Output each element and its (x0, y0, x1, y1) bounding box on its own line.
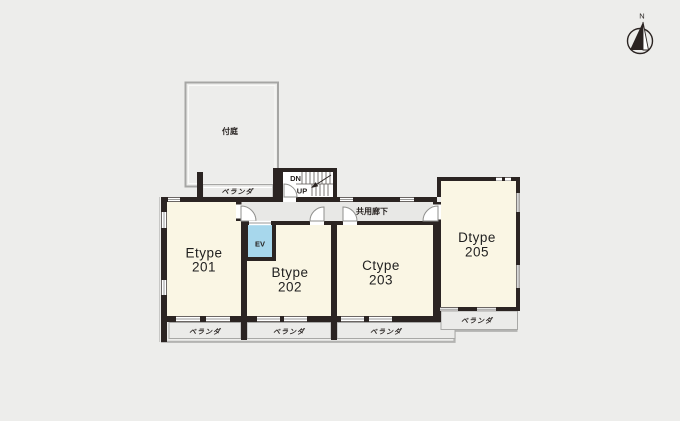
veranda-label-ctype: ベランダ (370, 327, 403, 336)
unit-etype-type: Etype (185, 246, 222, 261)
veranda-label-etype: ベランダ (189, 327, 222, 336)
veranda-label-dtype: ベランダ (461, 316, 494, 325)
stair-down-label: DN (290, 174, 301, 183)
upper-veranda: ベランダ (203, 185, 274, 198)
garden-label: 付庭 (222, 126, 239, 136)
elevator: EV (248, 221, 272, 257)
unit-ctype-type: Ctype (362, 258, 400, 273)
corridor-label: 共用廊下 (356, 206, 388, 216)
elevator-label: EV (255, 240, 265, 249)
unit-ctype-number: 203 (369, 273, 393, 288)
unit-dtype-number: 205 (465, 245, 489, 260)
stair-up-label: UP (297, 187, 307, 196)
unit-dtype-type: Dtype (458, 230, 496, 245)
floor-plan: 付庭 ベランダ ベランダ ベランダ ベランダ ベランダ (0, 0, 680, 421)
unit-btype-type: Btype (271, 265, 308, 280)
compass-north-label: N (639, 12, 644, 21)
upper-veranda-label: ベランダ (222, 187, 255, 196)
veranda-label-btype: ベランダ (273, 327, 306, 336)
unit-etype-number: 201 (192, 260, 216, 275)
corridor (241, 202, 433, 221)
unit-btype-number: 202 (278, 280, 302, 295)
